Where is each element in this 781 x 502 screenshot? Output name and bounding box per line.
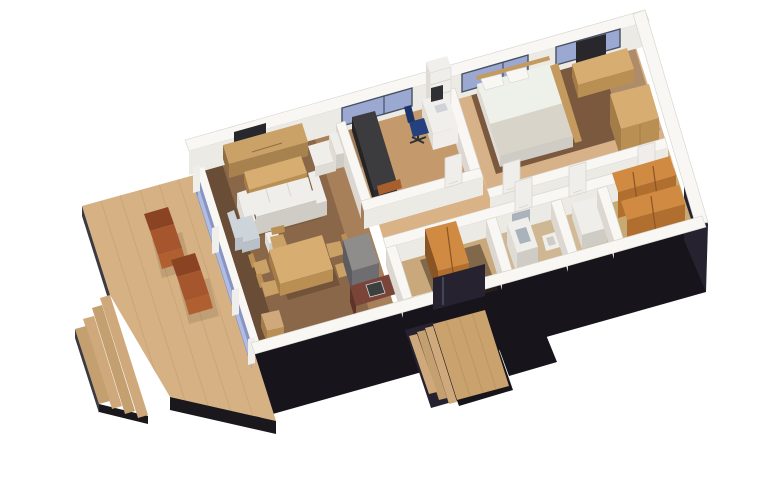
sofa-arm-right-front <box>317 201 327 218</box>
floorplan-render <box>0 0 781 502</box>
facade-post-2 <box>212 226 219 254</box>
blue-armchair-back-front <box>235 237 243 251</box>
facade-post-3 <box>232 288 239 316</box>
desk-monitor <box>431 85 443 102</box>
floorplan-render-stage <box>0 0 781 502</box>
facade-post-1 <box>193 165 200 193</box>
armchair-back-front <box>336 153 344 169</box>
